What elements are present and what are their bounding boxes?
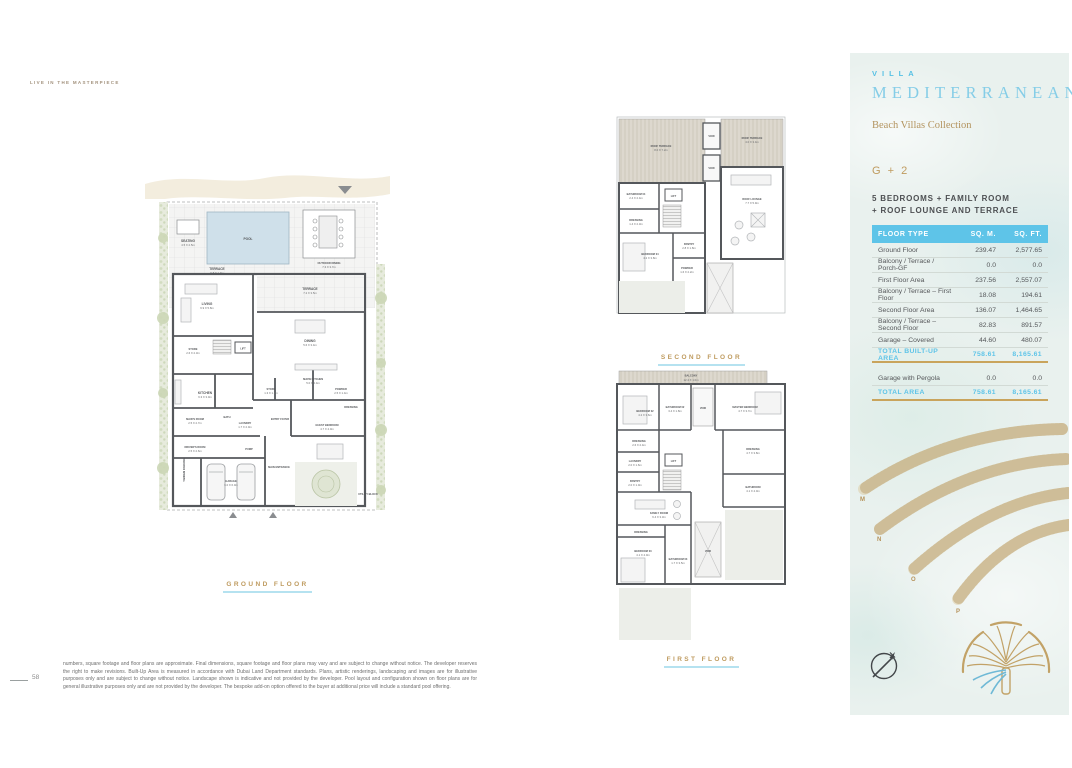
room-dim: 1.4 X 2.3m	[629, 222, 643, 226]
total-area-row: TOTAL AREA 758.61 8,165.61	[872, 386, 1048, 401]
room-dim: 4.1 X 4.0m	[746, 489, 760, 493]
row-label: Balcony / Terrace / Porch-GF	[878, 258, 954, 272]
room-dim: 5.6 X 3.4m	[303, 343, 317, 347]
row-sqm: 0.0	[954, 375, 996, 382]
row-sqm: 18.08	[954, 292, 996, 299]
bed	[621, 558, 645, 582]
row-sqft: 8,165.61	[996, 389, 1042, 396]
room-label: LIFT	[671, 194, 677, 198]
room-label: VOID	[700, 406, 706, 410]
bed	[623, 243, 645, 271]
row-sqm: 136.07	[954, 307, 996, 314]
header-floor-type: FLOOR TYPE	[878, 231, 954, 238]
room-label: TANDEM PARKING	[182, 458, 186, 481]
compass-icon	[866, 648, 902, 684]
room-label: DRESSING	[634, 530, 648, 534]
ground-floor-svg: POOL SEATING 4.5 X 2.5m OUTDOOR DINING 7…	[145, 168, 390, 562]
row-sqft: 0.0	[996, 375, 1042, 382]
brochure-page: { "page": { "eyebrow": "LIVE IN THE MAST…	[0, 0, 1072, 768]
row-sqft: 194.61	[996, 292, 1042, 299]
stairs	[663, 205, 681, 227]
beach-sand	[145, 175, 390, 199]
villa-eyebrow: VILLA	[872, 69, 919, 78]
room-dim: 6.0 X 6.0m	[224, 483, 238, 487]
entry-arrow-icon	[229, 512, 237, 518]
table-row: Garage – Covered 44.60 480.07	[872, 333, 1048, 348]
unit-type: G + 2	[872, 165, 909, 177]
total-built-up-row: TOTAL BUILT-UP AREA 758.61 8,165.61	[872, 348, 1048, 363]
row-sqft: 2,557.07	[996, 277, 1042, 284]
ground-floor-title: GROUND FLOOR	[145, 573, 390, 593]
row-label: Ground Floor	[878, 247, 954, 254]
row-sqm: 239.47	[954, 247, 996, 254]
bedrooms-line-2: + ROOF LOUNGE AND TERRACE	[872, 205, 1019, 217]
room-dim: 2.5 X 2.6m	[188, 449, 202, 453]
room-dim: 4.2 X 3.8m	[643, 256, 657, 260]
table-row: First Floor Area 237.56 2,557.07	[872, 273, 1048, 288]
first-floor-title: FIRST FLOOR	[603, 648, 800, 668]
row-label: Garage with Pergola	[878, 375, 954, 382]
bed	[755, 392, 781, 414]
seating-furniture	[177, 220, 199, 234]
room-dim: 4.2 X 3.6m	[638, 413, 652, 417]
collection-subtitle: Beach Villas Collection	[872, 120, 972, 131]
table-header: FLOOR TYPE SQ. M. SQ. FT.	[872, 225, 1048, 243]
row-sqft: 8,165.61	[996, 351, 1042, 358]
room-dim: 4.5 X 2.5m	[181, 243, 195, 247]
courtyard-tree	[312, 470, 340, 498]
room-dim: 1.6 X 2.2m	[680, 270, 694, 274]
fronds	[864, 429, 1069, 599]
room-dim: 2.5 X 1.4m	[334, 391, 348, 395]
page-number: 58	[32, 674, 39, 681]
frond-label-m: M	[860, 497, 865, 503]
room-label: LIFT	[671, 459, 677, 463]
frond-label-o: O	[911, 577, 916, 583]
header-sqft: SQ. FT.	[996, 231, 1042, 238]
room-dim: 8.0 X 7.2m	[654, 148, 668, 152]
room-dim: 12.4 X 1.0m	[683, 378, 699, 382]
row-sqft: 480.07	[996, 337, 1042, 344]
second-floor-svg: ROOF TERRACE 8.0 X 7.2m ROOF TERRACE 4.0…	[603, 103, 800, 343]
row-label: Balcony / Terrace – Second Floor	[878, 318, 954, 332]
bedrooms-summary: 5 BEDROOMS + FAMILY ROOM + ROOF LOUNGE A…	[872, 193, 1019, 216]
header-sqm: SQ. M.	[954, 231, 996, 238]
room-label: VOID	[708, 134, 714, 138]
palm-island-icon	[953, 610, 1058, 705]
room-dim: 1.7 X 2.0m	[238, 425, 252, 429]
room-label: VOID	[705, 549, 711, 553]
row-sqm: 758.61	[954, 389, 996, 396]
row-label: Second Floor Area	[878, 307, 954, 314]
table-row: Second Floor Area 136.07 1,464.65	[872, 303, 1048, 318]
row-sqft: 0.0	[996, 262, 1042, 269]
room-label: BATH	[223, 415, 230, 419]
room-dim: 4.7 X 4.0m	[320, 427, 334, 431]
row-sqm: 44.60	[954, 337, 996, 344]
room-label: BALCONY	[685, 374, 698, 378]
row-sqm: 237.56	[954, 277, 996, 284]
room-dim: 2.8 X 1.8m	[682, 246, 696, 250]
area-table: FLOOR TYPE SQ. M. SQ. FT. Ground Floor 2…	[872, 225, 1048, 401]
table-row: Balcony / Terrace / Porch-GF 0.0 0.0	[872, 258, 1048, 273]
row-sqm: 0.0	[954, 262, 996, 269]
row-label: Garage – Covered	[878, 337, 954, 344]
room-dim: 2.0 X 1.6m	[628, 463, 642, 467]
room-label: MAIN ENTRANCE	[268, 465, 290, 469]
room-dim: 6.9 X 5.8m	[200, 306, 214, 310]
room-dim: 2.6 X 2.4m	[632, 443, 646, 447]
table-row: Balcony / Terrace – Second Floor 82.83 8…	[872, 318, 1048, 333]
frond-location-map: M N O P	[850, 423, 1069, 640]
room-label: ENTRY FOYER	[271, 417, 289, 421]
landscape-area	[619, 588, 691, 640]
brand-panel: VILLA MEDITERRANEAN Beach Villas Collect…	[850, 53, 1069, 715]
room-dim: 7.7 X 5.9m	[745, 201, 759, 205]
room-dim: 1.7 X 3.5m	[671, 561, 685, 565]
room-dim: 4.1 X 4.0m	[636, 553, 650, 557]
room-dim: 2.5 X 2.7m	[188, 421, 202, 425]
highlighted-fronds	[973, 670, 1006, 694]
room-label: VOID	[708, 166, 714, 170]
room-label: DRESSING	[344, 405, 358, 409]
dining-table	[319, 216, 337, 248]
masterpiece-eyebrow: LIVE IN THE MASTERPIECE	[30, 80, 120, 85]
room-dim: 6.3 X 3.0m	[198, 395, 212, 399]
row-sqft: 1,464.65	[996, 307, 1042, 314]
row-label: Balcony / Terrace – First Floor	[878, 288, 954, 302]
room-dim: 2.4 X 2.4m	[629, 196, 643, 200]
table-row: Balcony / Terrace – First Floor 18.08 19…	[872, 288, 1048, 303]
landscape-area	[725, 510, 783, 580]
table-row: Ground Floor 239.47 2,577.65	[872, 243, 1048, 258]
room-dim: 7.3 X 3.7m	[322, 265, 336, 269]
frond-label-n: N	[877, 537, 881, 543]
row-label: First Floor Area	[878, 277, 954, 284]
entry-arrow-icon	[269, 512, 277, 518]
row-sqm: 758.61	[954, 351, 996, 358]
room-dim: 4.0 X 3.4m	[745, 140, 759, 144]
room-dim: 7.2 X 3.5m	[303, 291, 317, 295]
room-label: POOL	[243, 237, 252, 241]
row-label: TOTAL BUILT-UP AREA	[878, 348, 954, 362]
room-label: LIFT	[240, 347, 246, 351]
room-dim: 2.6 X 2.3m	[186, 351, 200, 355]
stairs	[663, 470, 681, 490]
disclaimer-text: numbers, square footage and floor plans …	[63, 661, 477, 691]
footer-divider	[10, 680, 28, 681]
room-dim: 2.0 X 1.0m	[628, 483, 642, 487]
row-sqm: 82.83	[954, 322, 996, 329]
room-dim: 1.3 X 1.3m	[264, 391, 278, 395]
room-dim: 4.7 X 3.7m	[738, 409, 752, 413]
villa-name: MEDITERRANEAN	[872, 83, 1072, 103]
row-sqft: 891.57	[996, 322, 1042, 329]
room-label: PUMP	[245, 447, 253, 451]
stairs	[213, 340, 231, 354]
room-dim: 4.7 X 3.8m	[746, 451, 760, 455]
row-sqft: 2,577.65	[996, 247, 1042, 254]
room-label: UTILITY BLOCK	[358, 492, 378, 496]
garage-pergola-row: Garage with Pergola 0.0 0.0	[872, 371, 1048, 386]
bedrooms-line-1: 5 BEDROOMS + FAMILY ROOM	[872, 193, 1019, 205]
room-dim: 6.4 X 3.3m	[652, 515, 666, 519]
landscape-area	[619, 281, 685, 313]
row-label: TOTAL AREA	[878, 389, 954, 396]
first-floor-svg: BALCONY 12.4 X 1.0m BEDROOM 02 4.2 X 3.6…	[603, 362, 800, 647]
room-dim: 5.0 X 2.4m	[306, 381, 320, 385]
room-dim: 3.4 X 1.8m	[668, 409, 682, 413]
